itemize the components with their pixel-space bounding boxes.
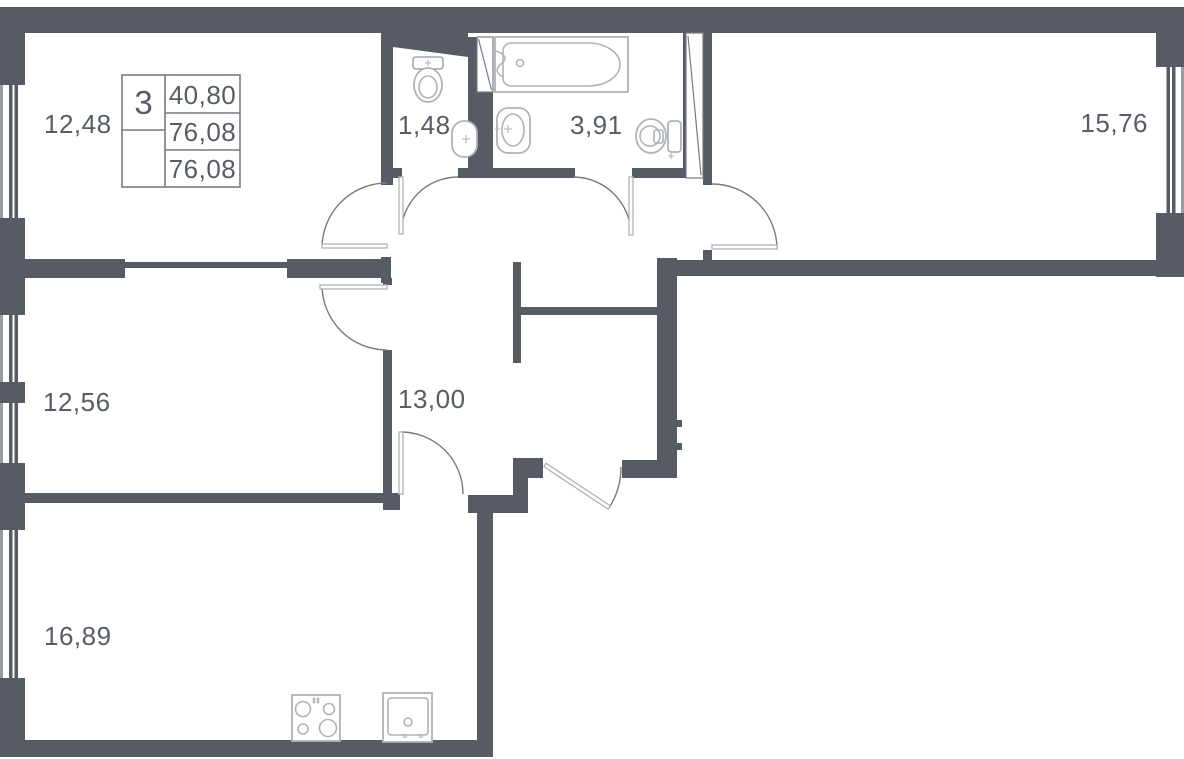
- wall-segment: [0, 218, 25, 315]
- wall-segment: [383, 278, 392, 285]
- wall-segment: [381, 33, 393, 185]
- wall-segment: [1156, 7, 1184, 67]
- window: [1167, 67, 1184, 213]
- door-leaf: [712, 245, 777, 249]
- window-sill: [0, 85, 3, 218]
- room-area-label-bedroom-top-right: 15,76: [1080, 108, 1148, 138]
- wall-segment: [677, 443, 682, 450]
- wall-segment: [622, 460, 677, 478]
- wall-segment: [513, 262, 521, 363]
- window-frame: [1172, 67, 1176, 213]
- wall-segment: [383, 350, 392, 495]
- wall-segment: [0, 382, 25, 403]
- declared-area-value: 76,08: [169, 154, 237, 184]
- wall-segment: [513, 478, 528, 496]
- wall-segment: [513, 458, 543, 478]
- door-kitchen: [399, 432, 463, 494]
- sink-icon: [452, 121, 477, 157]
- door-swing-arc: [322, 285, 387, 350]
- door-leaf: [320, 285, 387, 289]
- wall-segment: [287, 259, 383, 278]
- door-swing-arc: [712, 184, 777, 249]
- door-leaf: [544, 463, 610, 509]
- wall-segment: [703, 33, 712, 185]
- wall-segment: [657, 258, 677, 478]
- floor-plan-page: 3 40,80 76,08 76,08 12,48 1,48 3,91 15,7…: [0, 0, 1184, 759]
- wall-segment: [477, 495, 493, 757]
- window-frame: [15, 85, 19, 218]
- window: [0, 315, 18, 382]
- window: [0, 85, 18, 218]
- vent-shaft: [686, 33, 703, 178]
- stove-icon: [292, 695, 340, 741]
- window-frame: [15, 315, 19, 382]
- door-swing-arc: [609, 467, 621, 508]
- window-frame: [15, 530, 19, 678]
- toilet-icon: [413, 57, 443, 102]
- wall-segment: [703, 250, 712, 262]
- entrance-door: [544, 463, 621, 509]
- room-labels-layer: 12,48 1,48 3,91 15,76 12,56 13,00 16,89: [43, 108, 1148, 651]
- room-area-label-wc: 1,48: [398, 110, 451, 140]
- wall-segment: [468, 37, 477, 92]
- wall-segment: [0, 7, 1184, 33]
- wall-segment: [383, 493, 400, 510]
- door-leaf: [629, 177, 633, 235]
- door-bedroom-top-right: [712, 184, 777, 249]
- room-area-label-hallway: 13,00: [398, 384, 466, 414]
- sink-icon: [495, 108, 530, 153]
- window-sill: [0, 530, 3, 678]
- wall-segment: [0, 7, 25, 85]
- window-sill: [0, 315, 3, 382]
- room-area-label-kitchen-living: 16,89: [44, 621, 112, 651]
- window-frame: [9, 315, 13, 382]
- room-area-label-bathroom: 3,91: [570, 110, 623, 140]
- room-area-label-bedroom-mid-left: 12,56: [43, 387, 111, 417]
- floor-plan-canvas: 3 40,80 76,08 76,08 12,48 1,48 3,91 15,7…: [0, 0, 1184, 759]
- room-area-label-bedroom-top-left: 12,48: [44, 109, 112, 139]
- wall-segment: [25, 493, 383, 503]
- door-leaf: [399, 177, 403, 234]
- door-bedroom-top-left: [322, 183, 387, 248]
- wall-segment: [393, 33, 468, 57]
- window: [0, 403, 18, 463]
- wall-segment: [458, 168, 575, 178]
- window-frame: [9, 85, 13, 218]
- door-swing-arc: [322, 183, 387, 248]
- window-frame: [1167, 67, 1171, 213]
- window-frame: [9, 530, 13, 678]
- window: [0, 530, 18, 678]
- door-swing-arc: [401, 177, 458, 234]
- door-wc: [399, 177, 458, 234]
- door-leaf: [399, 432, 403, 494]
- kitchen-sink-icon: [383, 693, 432, 742]
- door-leaf: [322, 244, 387, 248]
- door-bedroom-mid-left: [320, 285, 387, 350]
- wall-segment: [521, 307, 657, 315]
- door-swing-arc: [573, 177, 631, 235]
- total-area-value: 76,08: [169, 117, 237, 147]
- wall-segment: [25, 259, 125, 278]
- bathtub-icon: [495, 37, 628, 92]
- vent-shaft: [477, 37, 493, 92]
- door-swing-arc: [401, 432, 463, 494]
- door-bathroom: [573, 177, 633, 235]
- rooms-count-value: 3: [134, 84, 152, 121]
- toilet-icon: [636, 119, 681, 159]
- living-area-value: 40,80: [169, 80, 237, 110]
- wall-segment: [657, 260, 1184, 276]
- wall-segment: [125, 262, 287, 268]
- wall-segment: [677, 420, 682, 427]
- info-table: 3 40,80 76,08 76,08: [122, 75, 240, 187]
- window-frame: [15, 403, 19, 463]
- wall-segment: [0, 463, 25, 530]
- window-frame: [9, 403, 13, 463]
- window-sill: [0, 403, 3, 463]
